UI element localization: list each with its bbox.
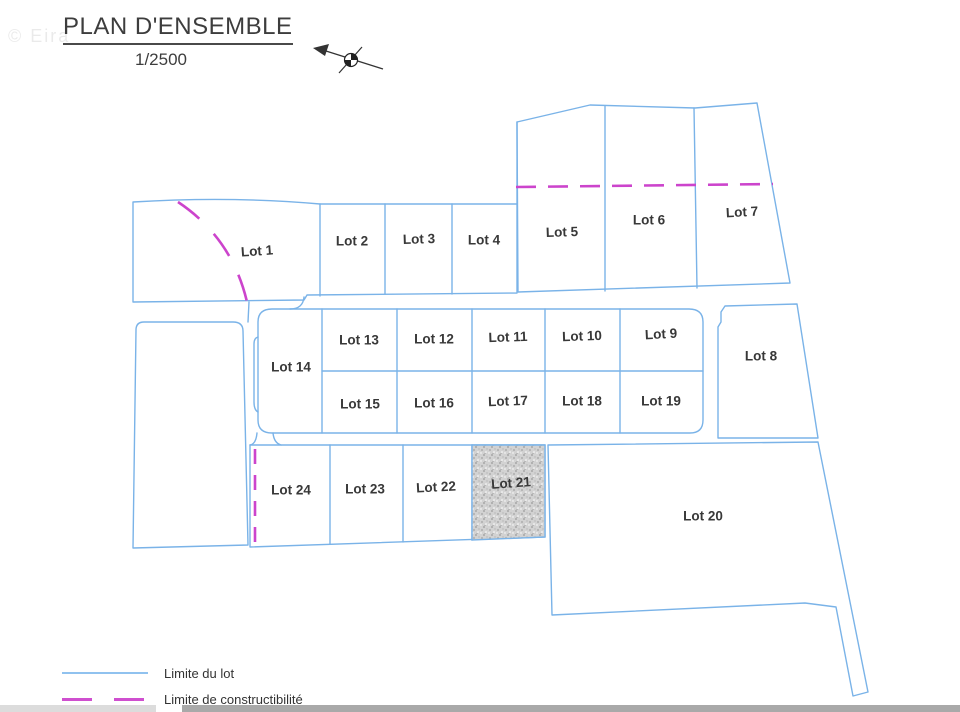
lot-17-label: Lot 17	[488, 393, 528, 409]
lot-15-label: Lot 15	[340, 397, 380, 412]
lot-13-label: Lot 13	[339, 333, 379, 348]
lot-21-label: Lot 21	[491, 474, 532, 492]
lot-limit-line-swatch	[62, 672, 148, 674]
lot-16-label: Lot 16	[414, 396, 454, 411]
legend-item-lot-limit: Limite du lot	[62, 660, 303, 686]
lot-7-label: Lot 7	[726, 204, 759, 221]
lot-8-outline	[718, 304, 818, 438]
lot-22-label: Lot 22	[416, 478, 456, 495]
lot-9-label: Lot 9	[645, 326, 678, 343]
lot-5-label: Lot 5	[546, 224, 579, 240]
horizontal-scrollbar	[0, 705, 960, 712]
lot-19-label: Lot 19	[641, 394, 681, 409]
lot-11-label: Lot 11	[488, 329, 528, 345]
left-block-outline	[133, 322, 248, 548]
lot-1-label: Lot 1	[240, 242, 274, 259]
lot-4-label: Lot 4	[468, 233, 501, 248]
constructibility-arc-lot-1	[178, 202, 247, 302]
lots-5-7-outline	[517, 103, 790, 292]
lot-18-label: Lot 18	[562, 394, 602, 409]
lot-20-label: Lot 20	[683, 509, 723, 524]
lot-10-label: Lot 10	[562, 328, 602, 344]
lot-21-hatched-region	[472, 445, 545, 540]
north-arrow-icon	[313, 44, 383, 73]
site-plan-drawing: Lot 1 Lot 2 Lot 3 Lot 4 Lot 5 Lot 6 Lot …	[0, 0, 960, 712]
constructibility-line-swatch	[62, 698, 148, 701]
lot-3-label: Lot 3	[403, 231, 436, 247]
lots-1-4-outline	[133, 199, 517, 302]
lot-8-label: Lot 8	[745, 349, 778, 364]
horizontal-scrollbar-track[interactable]	[0, 705, 156, 712]
horizontal-scrollbar-thumb[interactable]	[182, 705, 960, 712]
lot-2-label: Lot 2	[336, 234, 368, 249]
lot-20-outline	[548, 442, 868, 696]
constructibility-line-lots-5-7	[516, 184, 773, 187]
lot-12-label: Lot 12	[414, 332, 454, 347]
lot-6-label: Lot 6	[633, 213, 666, 228]
legend-label: Limite du lot	[164, 666, 234, 681]
lot-24-label: Lot 24	[271, 483, 311, 498]
lot-14-label: Lot 14	[271, 360, 311, 375]
lot-23-label: Lot 23	[345, 482, 385, 497]
site-plan-page: © Eira PLAN D'ENSEMBLE 1/2500	[0, 0, 960, 712]
